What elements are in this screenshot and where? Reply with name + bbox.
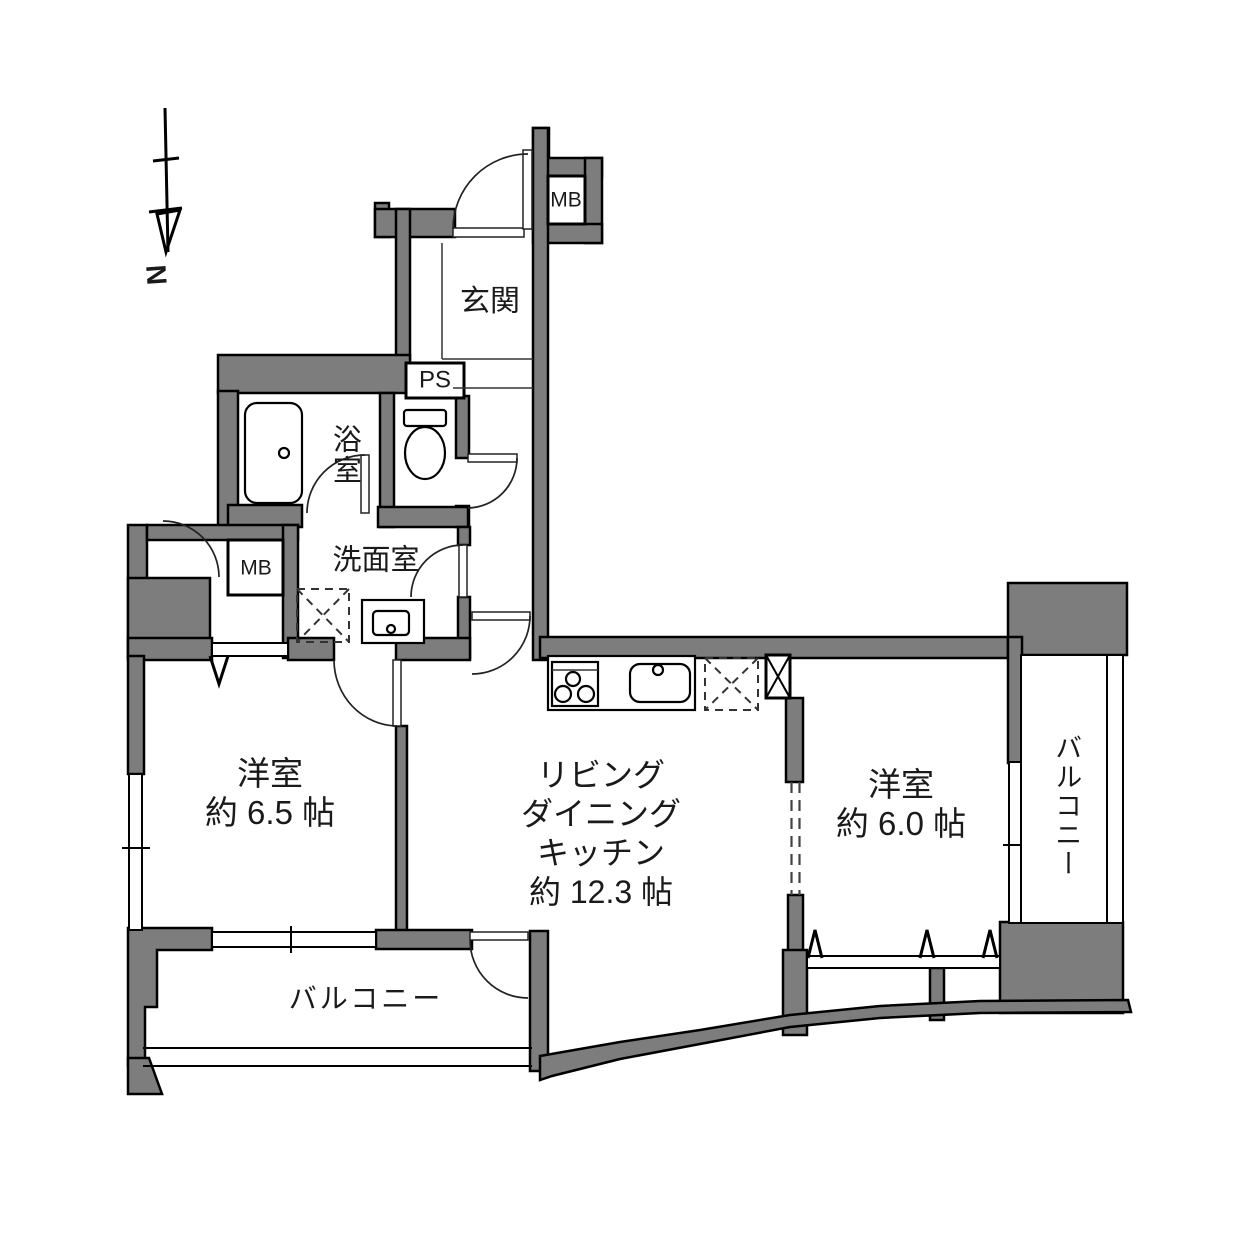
- entrance-threshold: [453, 228, 524, 237]
- kitchen-counter: [548, 656, 695, 710]
- label-balcony-east: バルコニー: [1050, 734, 1082, 879]
- wall: [376, 930, 472, 949]
- label-meter-box-top: MB: [550, 187, 582, 212]
- label-washroom: 洗面室: [332, 544, 419, 579]
- label-ldk-line1: リビング: [521, 756, 681, 795]
- window-east: [1009, 762, 1021, 923]
- closet-fold-mark: [808, 930, 822, 958]
- wall: [1008, 637, 1022, 763]
- wall: [218, 355, 410, 393]
- label-entrance: 玄関: [460, 284, 520, 320]
- label-bedroom-left-size: 約 6.5 帖: [205, 793, 335, 833]
- toilet-door-arc: [468, 458, 517, 508]
- wall: [396, 209, 410, 359]
- balcony-south-rails: [143, 1048, 532, 1066]
- closet-track-right: [807, 956, 1000, 968]
- closet-fold-mark: [210, 656, 228, 684]
- label-bedroom-left-name: 洋室: [237, 754, 303, 794]
- ldk-door-leaf: [472, 612, 530, 620]
- wall: [786, 698, 803, 782]
- label-ldk-line3: キッチン: [521, 834, 681, 873]
- floor-plan: N 玄関 MB PS 浴室 MB 洗面室 洋室 約 6.5 帖 リビング ダイニ…: [0, 0, 1252, 1252]
- washroom-door-leaf: [459, 545, 467, 597]
- kitchen-sink-icon: [630, 664, 690, 702]
- stove-icon: [552, 662, 598, 706]
- ldk-door-arc: [472, 616, 530, 674]
- sliding-partition: [792, 782, 800, 895]
- entrance-door-arc: [453, 154, 528, 229]
- label-bathroom: 浴室: [327, 424, 362, 486]
- wall: [530, 931, 548, 1071]
- label-meter-box-left: MB: [240, 555, 272, 580]
- vanity-sink-icon: [362, 600, 424, 643]
- closet-track-left: [212, 643, 288, 656]
- window-west: [129, 774, 142, 930]
- bedroom-left-door-arc: [334, 660, 397, 726]
- wall-corridor-east: [533, 128, 548, 660]
- pipe-shaft-x-box: [766, 655, 790, 698]
- toilet-icon: [404, 410, 446, 479]
- wall: [456, 396, 469, 458]
- balcony-door-arc: [470, 940, 528, 998]
- toilet-door-leaf: [468, 454, 517, 462]
- wall: [128, 656, 144, 774]
- bathtub-icon: [245, 403, 302, 503]
- north-arrow-icon: [149, 108, 182, 252]
- washer-space-icon: [297, 589, 349, 642]
- wall: [458, 527, 470, 545]
- fridge-space-icon: [705, 658, 758, 710]
- wall: [375, 209, 455, 237]
- label-bedroom-right-name: 洋室: [868, 765, 934, 805]
- bathroom-door-leaf: [361, 455, 369, 513]
- wall: [378, 507, 468, 527]
- label-bedroom-right-size: 約 6.0 帖: [836, 804, 966, 844]
- label-ldk-size: 約 12.3 帖: [521, 873, 681, 912]
- wall-bedroom-divider: [396, 726, 407, 932]
- wall-curved-south: [540, 1000, 1131, 1080]
- closet-fold-mark: [920, 930, 934, 958]
- floor-plan-drawing: [0, 0, 1252, 1252]
- wall: [228, 505, 302, 527]
- wall-wedge: [128, 1058, 162, 1094]
- label-balcony-south: バルコニー: [289, 982, 443, 1016]
- wall: [147, 525, 298, 540]
- closet-fold-mark: [983, 930, 997, 958]
- balcony-door-leaf: [470, 932, 528, 940]
- label-ldk-line2: ダイニング: [521, 795, 681, 834]
- window-south: [212, 932, 376, 947]
- walls: [128, 128, 1131, 1094]
- wall-block-northeast: [1008, 583, 1127, 655]
- entrance-door-leaf: [523, 150, 532, 229]
- label-ldk: リビング ダイニング キッチン 約 12.3 帖: [521, 756, 681, 912]
- north-label: N: [139, 264, 174, 287]
- bedroom-left-door-leaf: [393, 660, 401, 726]
- wall-block-southwest: [128, 928, 212, 1066]
- label-pipe-space: PS: [419, 367, 451, 396]
- wall: [788, 895, 803, 955]
